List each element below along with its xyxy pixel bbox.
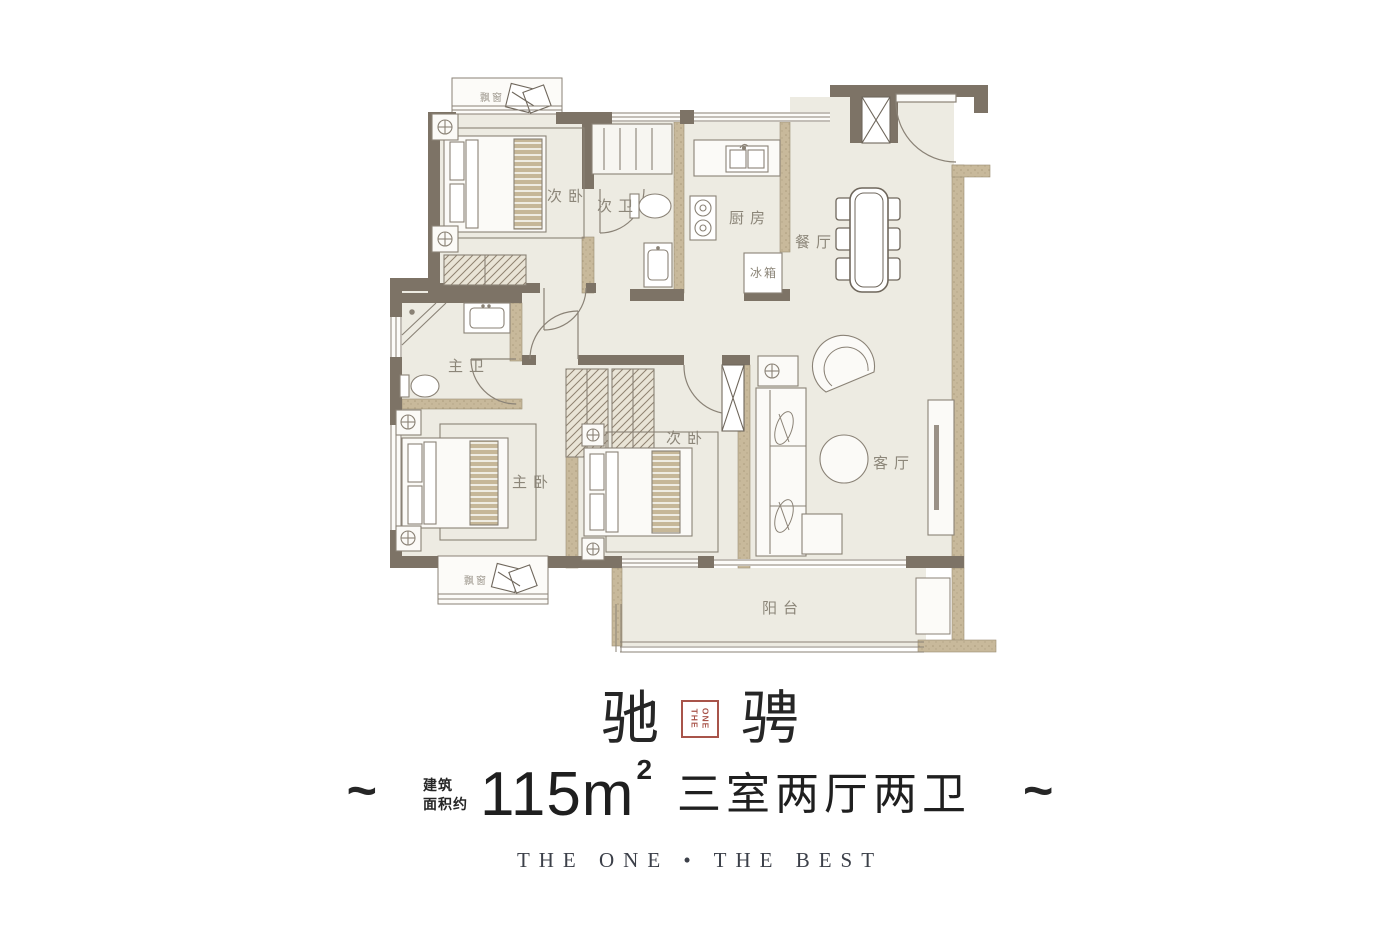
room-label-bedroom-second-bottom: 次卧	[666, 430, 708, 447]
nightstand-lamp-icon	[432, 114, 458, 140]
seal-line-2: THE	[689, 708, 700, 729]
dining-table-icon	[850, 188, 888, 292]
tilde-decoration-right: ~	[1023, 765, 1053, 817]
the-one-seal: ONE THE	[681, 700, 719, 738]
nightstand-lamp-icon	[396, 526, 421, 551]
room-label-bedroom-second-top: 次卧	[547, 188, 589, 205]
seal-line-1: ONE	[700, 708, 711, 729]
room-label-kitchen: 厨房	[729, 210, 771, 227]
plan-title: 驰 ONE THE 骋	[0, 690, 1400, 748]
floor-plan: 飘窗 次卧 次卫 厨房 冰箱 餐厅 主卫 主卧 次卧 客厅 阳台 飘窗	[0, 0, 1400, 672]
rooms-summary: 三室两厅两卫	[677, 773, 971, 817]
nightstand-lamp-icon	[396, 410, 421, 435]
tv-cabinet-icon	[928, 400, 954, 535]
wardrobe-icon	[612, 369, 654, 457]
title-char-left: 驰	[601, 690, 659, 748]
room-label-balcony: 阳台	[762, 600, 804, 617]
room-label-fridge: 冰箱	[750, 265, 778, 280]
area-unit: m	[582, 760, 635, 829]
area-info-row: ~ 建筑 面积约 115m2 三室两厅两卫 ~	[0, 764, 1400, 826]
area-label: 建筑 面积约	[423, 776, 468, 814]
room-label-living: 客厅	[873, 455, 915, 472]
room-label-dining: 餐厅	[795, 234, 837, 251]
nightstand-lamp-icon	[582, 424, 604, 446]
title-char-right: 骋	[741, 690, 799, 748]
sofa-icon	[756, 388, 806, 556]
coffee-table-icon	[820, 435, 868, 483]
slogan: THE ONE • THE BEST	[0, 848, 1400, 873]
washbasin-icon	[644, 243, 672, 287]
room-label-bedroom-master: 主卧	[512, 474, 554, 491]
floorplan-page: 飘窗 次卧 次卫 厨房 冰箱 餐厅 主卫 主卧 次卧 客厅 阳台 飘窗 驰 ON…	[0, 0, 1400, 933]
side-table-lamp-icon	[758, 356, 798, 386]
area-label-line1: 建筑	[423, 776, 468, 795]
dining-furniture	[836, 188, 900, 292]
toilet-icon	[400, 375, 439, 397]
room-label-bay-window-top: 飘窗	[480, 91, 504, 104]
area-exponent: 2	[636, 754, 653, 785]
tilde-decoration-left: ~	[347, 765, 377, 817]
area-label-line2: 面积约	[423, 795, 468, 814]
room-label-bay-window-bottom: 飘窗	[464, 574, 488, 587]
area-number: 115	[480, 760, 582, 829]
end-table-icon	[802, 514, 842, 554]
room-label-bath-master: 主卫	[448, 358, 490, 375]
stove-icon	[690, 196, 716, 240]
wardrobe-icon	[444, 255, 526, 285]
bay-window-bottom	[438, 556, 548, 604]
nightstand-lamp-icon	[582, 538, 604, 560]
nightstand-lamp-icon	[432, 226, 458, 252]
footer: 驰 ONE THE 骋 ~ 建筑 面积约 115m2 三室两厅两卫 ~ THE …	[0, 672, 1400, 933]
seal-text: ONE THE	[689, 708, 710, 729]
bay-window-top	[452, 78, 562, 114]
area-value: 115m2	[480, 764, 651, 826]
kitchen-sink-icon	[726, 144, 768, 172]
room-label-bath-second: 次卫	[597, 198, 639, 215]
floor-plan-svg: 飘窗 次卧 次卫 厨房 冰箱 餐厅 主卫 主卧 次卧 客厅 阳台 飘窗	[0, 0, 1400, 672]
washbasin-icon	[464, 303, 510, 333]
